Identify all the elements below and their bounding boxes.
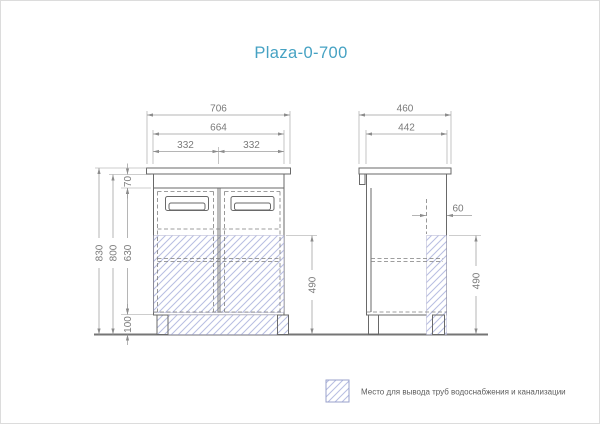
legend-pipe-zone-label: Место для вывода труб водоснабжения и ка… xyxy=(361,388,566,397)
dim-carcass-height: 800 xyxy=(109,244,120,261)
dim-front-carcass-width: 664 xyxy=(210,123,227,134)
legend: Место для вывода труб водоснабжения и ка… xyxy=(326,380,566,402)
dim-door-height: 630 xyxy=(123,244,134,261)
countertop-lip xyxy=(360,174,366,185)
dim-top-panel-height: 70 xyxy=(123,176,134,188)
legend-hatch-swatch xyxy=(326,380,349,402)
right-door-handle xyxy=(231,197,274,211)
front-view xyxy=(147,168,291,335)
dim-pipe-zone-depth: 60 xyxy=(452,204,464,215)
left-door-handle xyxy=(166,197,209,211)
dim-front-pipe-zone-height: 490 xyxy=(308,276,319,293)
dim-leg-height: 100 xyxy=(123,316,134,333)
drawing-canvas: Plaza-0-700 xyxy=(1,1,600,424)
side-view xyxy=(359,168,451,335)
dim-right-door-width: 332 xyxy=(243,140,260,151)
dim-left-door-width: 332 xyxy=(177,140,194,151)
dim-total-height: 830 xyxy=(95,244,106,261)
pipe-zone-hatch-front-bottom xyxy=(157,315,289,335)
drawing-title: Plaza-0-700 xyxy=(254,44,347,62)
pipe-zone-hatch-side xyxy=(427,236,447,335)
pipe-zone-hatch-front xyxy=(154,236,284,313)
dim-front-total-width: 706 xyxy=(210,104,227,115)
side-front-leg xyxy=(369,315,379,335)
dim-total-depth: 460 xyxy=(397,104,414,115)
dim-carcass-depth: 442 xyxy=(398,123,415,134)
countertop-side xyxy=(359,168,451,174)
technical-drawing-page: Plaza-0-700 xyxy=(0,0,600,424)
dim-side-pipe-zone-height: 490 xyxy=(472,272,483,289)
countertop-front xyxy=(147,168,291,174)
